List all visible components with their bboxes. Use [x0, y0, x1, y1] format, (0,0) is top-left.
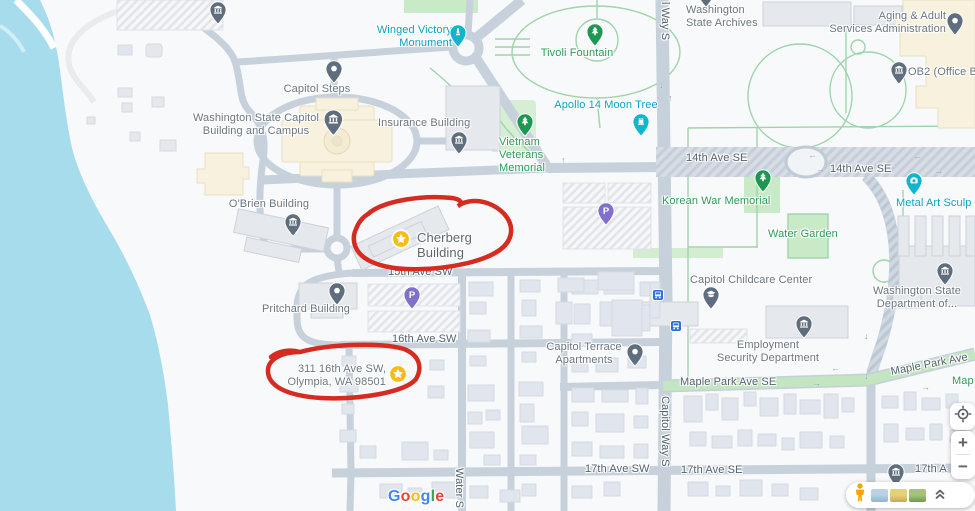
15th-ave-sw-label: 15th Ave SW	[388, 266, 454, 279]
road-direction-arrow: ←	[831, 363, 840, 373]
metal-art-sculpture-label[interactable]: Metal Art Sculp	[896, 197, 975, 210]
address-311-16th-ave-label[interactable]: 311 16th Ave SW, Olympia, WA 98501	[280, 363, 386, 389]
winged-victory-monument-label[interactable]: Winged Victory Monument	[364, 24, 452, 50]
ob2-office-label[interactable]: OB2 (Office B	[908, 66, 975, 79]
cherberg-building-label[interactable]: Cherberg Building	[417, 230, 513, 261]
google-logo-letter: e	[435, 488, 444, 505]
map-labels-layer: Winged Victory MonumentTivoli FountainWa…	[0, 0, 975, 511]
road-direction-arrow: →	[921, 382, 930, 392]
terrain-photo-thumbnail-icon[interactable]	[890, 489, 907, 502]
capitol-way-s-top-label: l Way S	[658, 2, 671, 40]
pritchard-building-label[interactable]: Pritchard Building	[262, 303, 360, 316]
road-direction-arrow: →	[812, 378, 821, 388]
17th-ave-se-label: 17th Ave SE	[681, 464, 749, 477]
washington-state-archives-label[interactable]: Washington State Archives	[686, 4, 776, 30]
employment-security-label[interactable]: Employment Security Department	[708, 339, 828, 365]
zoom-control[interactable]: + −	[951, 431, 975, 479]
my-location-button[interactable]	[950, 403, 975, 430]
my-location-icon	[954, 405, 972, 428]
road-direction-arrow: ←	[808, 150, 817, 160]
collapse-chevrons-icon[interactable]	[933, 486, 947, 505]
aging-adult-services-label[interactable]: Aging & Adult Services Administration	[806, 10, 946, 36]
tivoli-fountain-label[interactable]: Tivoli Fountain	[534, 47, 620, 60]
apollo-14-moon-tree-label[interactable]: Apollo 14 Moon Tree	[548, 99, 664, 112]
pegman-icon[interactable]	[854, 483, 866, 507]
capitol-childcare-center-label[interactable]: Capitol Childcare Center	[690, 274, 824, 287]
street-view-layers-bar[interactable]	[846, 482, 975, 508]
zoom-in-button[interactable]: +	[951, 431, 975, 454]
16th-ave-sw-label: 16th Ave SW	[392, 333, 458, 346]
capitol-way-s-label: Capitol Way S	[658, 396, 671, 467]
map-canvas[interactable]: Winged Victory MonumentTivoli FountainWa…	[0, 0, 975, 511]
capitol-steps-label[interactable]: Capitol Steps	[280, 83, 354, 96]
road-direction-arrow: →	[816, 164, 825, 174]
wa-dept-label[interactable]: Washington State Department of...	[868, 285, 966, 311]
layer-thumbnails[interactable]	[871, 489, 926, 502]
road-direction-arrow: →	[934, 166, 943, 176]
road-direction-arrow: ↑	[668, 93, 673, 103]
14th-ave-se-label-west: 14th Ave SE	[686, 152, 752, 165]
obrien-building-label[interactable]: O'Brien Building	[224, 198, 314, 211]
google-logo-letter: o	[401, 488, 411, 505]
road-direction-arrow: ↓	[864, 331, 869, 341]
road-direction-arrow: ↓	[659, 80, 664, 90]
google-logo-letter: G	[388, 488, 401, 505]
insurance-building-label[interactable]: Insurance Building	[378, 117, 480, 130]
water-garden-label[interactable]: Water Garden	[768, 228, 846, 241]
road-direction-arrow: ↑	[561, 155, 566, 165]
water-st-label: Water S	[452, 468, 465, 508]
korean-war-memorial-label[interactable]: Korean War Memorial	[662, 195, 784, 208]
maple-park-ave-se-label: Maple Park Ave SE	[680, 376, 786, 389]
14th-ave-se-label-east: 14th Ave SE	[830, 163, 896, 176]
17th-ave-sw-label: 17th Ave SW	[585, 463, 655, 476]
google-logo[interactable]: Google	[388, 488, 444, 506]
field-photo-thumbnail-icon[interactable]	[909, 489, 926, 502]
wa-state-capitol-label[interactable]: Washington State Capitol Building and Ca…	[184, 112, 328, 138]
zoom-out-button[interactable]: −	[951, 455, 975, 478]
vietnam-veterans-memorial-label[interactable]: Vietnam Veterans Memorial	[499, 136, 559, 175]
road-direction-arrow: ←	[913, 151, 922, 161]
maple-green-partial-label[interactable]: Map	[952, 375, 975, 388]
coast-photo-thumbnail-icon[interactable]	[871, 489, 888, 502]
google-logo-letter: o	[411, 488, 421, 505]
road-direction-arrow: ↓	[864, 371, 869, 381]
capitol-terrace-apartments-label[interactable]: Capitol Terrace Apartments	[541, 341, 627, 367]
google-logo-letter: g	[421, 488, 431, 505]
